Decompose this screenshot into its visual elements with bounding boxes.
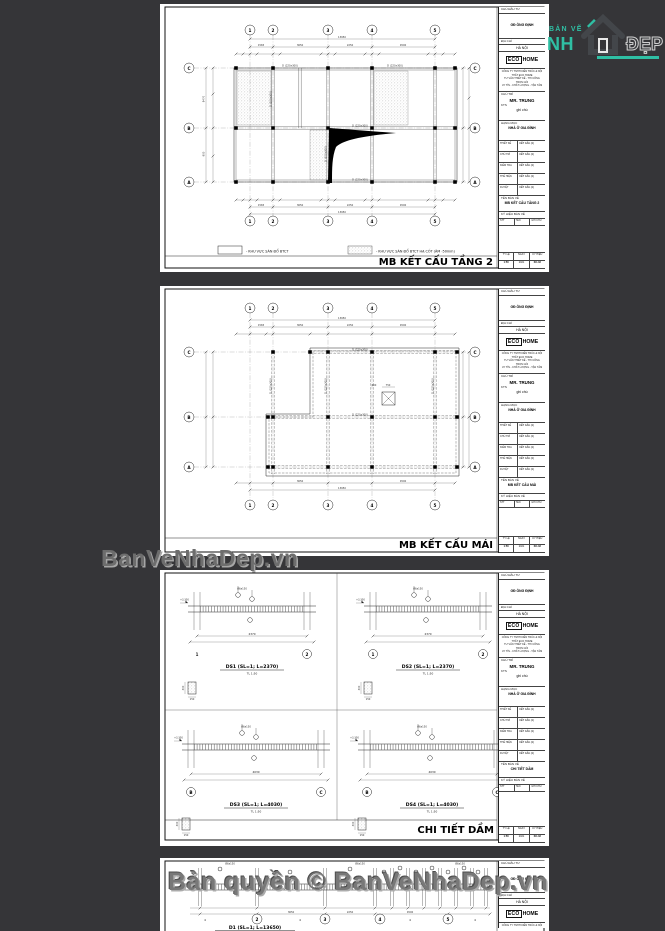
tb-company-line: TƯ VẤN THIẾT KẾ - THI CÔNG TRỌN GÓI [501,359,543,366]
dim-text: 13650 [338,210,346,214]
tb-sheet-name: MB KẾT CẤU MÁI [501,483,543,487]
dim-text: 900 [202,151,206,156]
tb-project-value: NHÀ Ở GIA ĐÌNH [501,692,543,696]
tb-row: THỂ HIỆNKẾT CẤU (2) [499,740,545,751]
scale-note: TL 1:50 [250,810,262,814]
tb-director-name: MR. TRUNG [501,98,543,103]
tb-company-line: CÔNG TY TNHH KIẾN TRÚC & NỘI THẤT ECO HO… [501,636,543,643]
svg-text:C: C [319,790,322,795]
tb-sheet-name: CHI TIẾT DẦM [501,767,543,771]
svg-text:4: 4 [371,28,374,33]
tb-empty-box [499,226,545,253]
svg-text:C: C [473,350,476,355]
dim-text: 1565 [258,323,265,327]
tb-company-line: UY TÍN - CHẤT LƯỢNG - TẬN TÂM [501,650,543,653]
house-icon [581,11,625,57]
dim-text: 3650 [297,203,304,207]
svg-text:3: 3 [327,503,330,508]
beam-section: 300 150 [351,818,366,837]
stair-void-shape [328,128,396,183]
tb-list-columns: STT TÊN GHI CHÚ [499,501,545,508]
tb-director-label: CHỦ TRÌ [501,375,543,379]
dim-text: 750 [386,383,391,387]
svg-text:B: B [187,126,190,131]
detail-ds2: Ø6a150 +3.300 2370 1 2 DS2 (SL=1; L=2370… [356,586,492,701]
title-block: CHỦ ĐẦU TƯ GĐ ÔNG ĐỊNH ĐỊA CHỈ HÀ NỘI EC… [498,289,545,553]
dim-text: 3650 [297,323,304,327]
svg-text:3: 3 [324,917,327,922]
svg-text:C: C [473,66,476,71]
beam-section: 300 150 [357,682,372,701]
svg-text:5: 5 [434,503,437,508]
detail-ds1: Ø6a150 +3.300 2370 1 2 DS1 (SL=1; L=2370… [180,586,316,701]
eco-home-logo: ECO HOME [499,334,545,351]
beam-label: D (100x300) [323,146,327,162]
tb-address-value: HÀ NỘI [499,899,545,906]
eco-home-logo-mark: ECO [506,910,522,918]
tb-bottom-grid: TỶ LỆ NGÀY KÝ HIỆU 1:50 2021 KC-02 [499,537,545,553]
scale-note: TL 1:50 [422,672,434,676]
beam-label: D (220x300) [352,124,368,128]
dim-text: 3650 [288,910,295,914]
roof-structure-drawing: 750 600 13650 1565 3650 2250 4500 3650 4… [160,286,549,556]
tb-company-line: UY TÍN - CHẤT LƯỢNG - TẬN TÂM [501,366,543,369]
svg-text:3: 3 [327,28,330,33]
tb-row: CHỦ TRÌKẾT CẤU (2) [499,434,545,445]
tb-address-value: HÀ NỘI [499,611,545,618]
site-logo: BẢN VẼ NH ĐẸP [533,15,663,65]
beam-label: D (220x300) [387,64,403,68]
tb-row: KIỂM TRAKẾT CẤU (2) [499,445,545,456]
tb-company-line: CÔNG TY TNHH KIẾN TRÚC & NỘI THẤT ECO HO… [501,70,543,77]
svg-text:2: 2 [272,503,275,508]
tb-director-label: CHỦ TRÌ [501,659,543,663]
dim-text: 3650 [297,43,304,47]
eco-home-logo-mark: ECO [506,338,522,346]
eco-home-logo-mark: ECO [506,56,522,64]
tb-director-name: MR. TRUNG [501,664,543,669]
dim-text: 600 [372,383,377,387]
svg-text:C: C [187,350,190,355]
dim-text: 4030 [428,770,435,774]
svg-text:1: 1 [249,306,252,311]
tb-company-info: CÔNG TY TNHH KIẾN TRÚC & NỘI THẤT ECO HO… [499,635,545,658]
dim-text: 4030 [252,770,259,774]
level-label: +3.300 [350,737,359,740]
dim-text: 4500 [400,203,407,207]
beam-detail-label: D1 (SL=1; L=13650) [229,925,281,931]
tb-list-columns: STT TÊN GHI CHÚ [499,785,545,792]
eco-home-logo-mark: ECO [506,622,522,630]
level-label: +3.300 [174,737,183,740]
svg-text:2: 2 [482,652,485,657]
eco-home-logo: ECO HOME [499,906,545,923]
svg-text:B: B [365,790,368,795]
tb-investor-value: GĐ ÔNG ĐỊNH [499,296,545,321]
legend-item-2: - KHU VỰC SÀN ĐỔ BTCT HẠ CỐT (ÂM -50mm) [376,248,455,253]
tb-director-cell: CHỦ TRÌ MR. TRUNG KTS ghi chú [499,374,545,403]
dim-text: 2250 [347,43,354,47]
tb-address-value: HÀ NỘI [499,327,545,334]
tb-row: CHỦ TRÌKẾT CẤU (2) [499,152,545,163]
tb-project-cell: HẠNG MỤC NHÀ Ở GIA ĐÌNH [499,403,545,423]
grid-bubbles: 1 2 3 4 5 1 2 3 4 5 C B A C B A [184,25,480,226]
beam-label: D (100x300) [268,91,272,107]
dim-text: 8470 [202,95,206,102]
grid-bubbles: 2 3 4 5 [252,914,453,924]
svg-text:5: 5 [434,28,437,33]
eco-home-logo-text: HOME [523,911,539,917]
tb-row: DUYỆTKẾT CẤU (2) [499,751,545,762]
dim-text: 1565 [258,203,265,207]
legend-swatch-plain [218,246,242,254]
tb-company-line: CÔNG TY TNHH KIẾN TRÚC & NỘI THẤT ECO HO… [501,352,543,359]
svg-text:300: 300 [175,821,179,826]
svg-text:2: 2 [272,219,275,224]
beam-label: D (220x300) [430,378,434,394]
svg-text:1: 1 [249,28,252,33]
svg-text:4: 4 [379,917,382,922]
tb-director-cell: CHỦ TRÌ MR. TRUNG KTS ghi chú [499,658,545,687]
dim-text: 4500 [407,910,414,914]
tb-project-value: NHÀ Ở GIA ĐÌNH [501,126,543,130]
legend-swatch-hatched [348,246,372,254]
scale-note: TL 1:50 [246,672,258,676]
svg-text:2: 2 [272,28,275,33]
svg-text:300: 300 [357,685,361,690]
dim-text: 13650 [338,35,346,39]
svg-text:B: B [473,126,476,131]
tb-investor-label: CHỦ ĐẦU TƯ [499,289,545,296]
tb-project-cell: HẠNG MỤC NHÀ Ở GIA ĐÌNH [499,687,545,707]
eco-home-logo: ECO HOME [499,618,545,635]
dim-text: 2370 [424,632,431,636]
tb-investor-label: CHỦ ĐẦU TƯ [499,573,545,580]
dim-text: 2370 [248,632,255,636]
tb-company-line: CÔNG TY TNHH KIẾN TRÚC & NỘI THẤT ECO HO… [501,924,543,928]
tb-address-label: ĐỊA CHỈ [499,605,545,612]
tb-bottom-grid: TỶ LỆ NGÀY KÝ HIỆU 1:50 2021 KC-02 [499,253,545,269]
tb-company-line: UY TÍN - CHẤT LƯỢNG - TẬN TÂM [501,84,543,87]
beam-detail-label: DS2 (SL=1; L=2370) [402,664,454,670]
svg-text:5: 5 [434,306,437,311]
tb-list-label: KÝ HIỆU BẢN VẼ [499,494,545,501]
svg-text:300: 300 [181,685,185,690]
svg-text:B: B [473,415,476,420]
svg-text:2: 2 [256,917,259,922]
tb-investor-value: GĐ ÔNG ĐỊNH [499,580,545,605]
dim-text: 2250 [347,203,354,207]
svg-text:150: 150 [184,833,189,837]
legend-item-1: - KHU VỰC SÀN ĐỔ BTCT [246,248,289,253]
title-block: CHỦ ĐẦU TƯ GĐ ÔNG ĐỊNH ĐỊA CHỈ HÀ NỘI EC… [498,573,545,843]
svg-text:B: B [187,415,190,420]
section-mark: 4 [409,918,411,922]
svg-text:1: 1 [372,652,375,657]
svg-text:3: 3 [327,306,330,311]
tb-director-name: MR. TRUNG [501,380,543,385]
tb-company-info: CÔNG TY TNHH KIẾN TRÚC & NỘI THẤT ECO HO… [499,923,545,928]
scale-note: TL 1:50 [426,810,438,814]
sheet-3-beam-details[interactable]: Ø6a150 +3.300 2370 1 2 DS1 (SL=1; L=2370… [160,570,549,846]
dim-text: 4500 [400,43,407,47]
svg-text:5: 5 [447,917,450,922]
svg-text:4: 4 [371,503,374,508]
tb-investor-label: CHỦ ĐẦU TƯ [499,7,545,14]
tb-address-label: ĐỊA CHỈ [499,321,545,328]
beam-detail-label: DS3 (SL=1; L=4030) [230,802,282,808]
skylight-opening: 750 600 [372,383,395,405]
sheet-title: MB KẾT CẤU TẦNG 2 [379,253,493,268]
svg-text:2: 2 [272,306,275,311]
beam-label: D (220x300) [268,378,272,394]
tb-sheet-cell: TÊN BẢN VẼ CHI TIẾT DẦM [499,762,545,778]
site-logo-tagline: BẢN VẼ [549,26,583,33]
level-label: +3.300 [356,599,365,602]
stirrup-label: Ø6a150 [241,724,251,729]
svg-text:150: 150 [366,697,371,701]
watermark-text: BanVeNhaDep.vn [101,545,298,572]
sheet-2-roof-structure[interactable]: 750 600 13650 1565 3650 2250 4500 3650 4… [160,286,549,556]
tb-director-label: CHỦ TRÌ [501,93,543,97]
svg-text:2: 2 [306,652,309,657]
tb-row: CHỦ TRÌKẾT CẤU (2) [499,718,545,729]
tb-project-cell: HẠNG MỤC NHÀ Ở GIA ĐÌNH [499,121,545,141]
tb-company-line: TƯ VẤN THIẾT KẾ - THI CÔNG TRỌN GÓI [501,77,543,84]
tb-row: DUYỆTKẾT CẤU (2) [499,185,545,196]
dim-text: 4500 [400,323,407,327]
sheet-1-floor2-structure[interactable]: 13650 1565 3650 2250 4500 1565 3650 2250… [160,4,549,272]
tb-list-label: KÝ HIỆU BẢN VẼ [499,778,545,785]
beam-detail-label: DS4 (SL=1; L=4030) [406,802,458,808]
tb-company-info: CÔNG TY TNHH KIẾN TRÚC & NỘI THẤT ECO HO… [499,69,545,92]
tb-arch-value: ghi chú [501,674,543,678]
tb-list-label: KÝ HIỆU BẢN VẼ [499,212,545,219]
svg-text:1: 1 [249,219,252,224]
svg-text:150: 150 [360,833,365,837]
beam-details-drawing: Ø6a150 +3.300 2370 1 2 DS1 (SL=1; L=2370… [160,570,549,846]
beam-label: D (220x300) [352,178,368,182]
tb-director-cell: CHỦ TRÌ MR. TRUNG KTS ghi chú [499,92,545,121]
drawing-preview-canvas: { "colors":{"background":"#353538","teal… [0,0,665,931]
tb-row: DUYỆTKẾT CẤU (2) [499,467,545,478]
tb-company-line: TƯ VẤN THIẾT KẾ - THI CÔNG TRỌN GÓI [501,643,543,650]
svg-text:C: C [187,66,190,71]
eco-home-logo-text: HOME [523,339,539,345]
tb-bottom-grid: TỶ LỆ NGÀY KÝ HIỆU 1:50 2021 KC-02 [499,827,545,843]
grid-ref: 1 [196,652,199,657]
site-logo-nh: NH [547,34,574,55]
floor2-structure-drawing: 13650 1565 3650 2250 4500 1565 3650 2250… [160,4,549,272]
stirrup-label: Ø6a150 [417,724,427,729]
level-label: +3.300 [180,599,189,602]
dim-text: 13650 [338,316,346,320]
tb-sheet-cell: TÊN BẢN VẼ MB KẾT CẤU MÁI [499,478,545,494]
stirrup-label: Ø6a150 [237,586,247,591]
tb-list-columns: STT TÊN GHI CHÚ [499,219,545,226]
section-mark: 4 [204,918,206,922]
svg-text:1: 1 [249,503,252,508]
svg-text:4: 4 [371,306,374,311]
sheet-title: CHI TIẾT DẦM [417,821,494,836]
site-logo-dep: ĐẸP [626,34,663,55]
tb-row: THIẾT KẾKẾT CẤU (2) [499,707,545,718]
tb-arch-value: ghi chú [501,390,543,394]
tb-sheet-cell: TÊN BẢN VẼ MB KẾT CẤU TẦNG 2 [499,196,545,212]
beam-label: D (220x300) [352,348,368,352]
site-logo-underline [597,56,659,59]
eco-home-logo-text: HOME [523,623,539,629]
svg-text:5: 5 [434,219,437,224]
tb-row: THIẾT KẾKẾT CẤU (2) [499,141,545,152]
svg-text:3: 3 [327,219,330,224]
dim-text: 2250 [347,910,354,914]
beam-label: D (220x300) [282,64,298,68]
svg-text:4: 4 [371,219,374,224]
tb-arch-value: ghi chú [501,108,543,112]
section-mark: 4 [299,918,301,922]
tb-investor-label: CHỦ ĐẦU TƯ [499,861,545,868]
tb-row: KIỂM TRAKẾT CẤU (2) [499,729,545,740]
dim-text: 2250 [347,323,354,327]
tb-company-info: CÔNG TY TNHH KIẾN TRÚC & NỘI THẤT ECO HO… [499,351,545,374]
beam-detail-label: DS1 (SL=1; L=2370) [226,664,278,670]
dim-text: 1565 [258,43,265,47]
tb-row: THIẾT KẾKẾT CẤU (2) [499,423,545,434]
dim-text: 4500 [400,479,407,483]
section-mark: 4 [474,918,476,922]
tb-project-value: NHÀ Ở GIA ĐÌNH [501,408,543,412]
copyright-text: Bản quyền © BanVeNhaDep.vn [168,868,548,897]
dim-text: 3650 [297,479,304,483]
beam-label: D (220x300) [352,413,368,417]
stirrup-label: Ø6a150 [413,586,423,591]
tb-empty-box [499,508,545,537]
dim-text: 13650 [338,486,346,490]
beam-label: D (220x300) [323,378,327,394]
tb-row: THỂ HIỆNKẾT CẤU (2) [499,456,545,467]
tb-row: KIỂM TRAKẾT CẤU (2) [499,163,545,174]
beam-section: 300 150 [181,682,196,701]
beam-section: 300 150 [175,818,190,837]
tb-row: THỂ HIỆNKẾT CẤU (2) [499,174,545,185]
svg-text:300: 300 [351,821,355,826]
tb-sheet-name: MB KẾT CẤU TẦNG 2 [501,201,543,205]
svg-text:150: 150 [190,697,195,701]
tb-empty-box [499,792,545,827]
svg-text:B: B [189,790,192,795]
